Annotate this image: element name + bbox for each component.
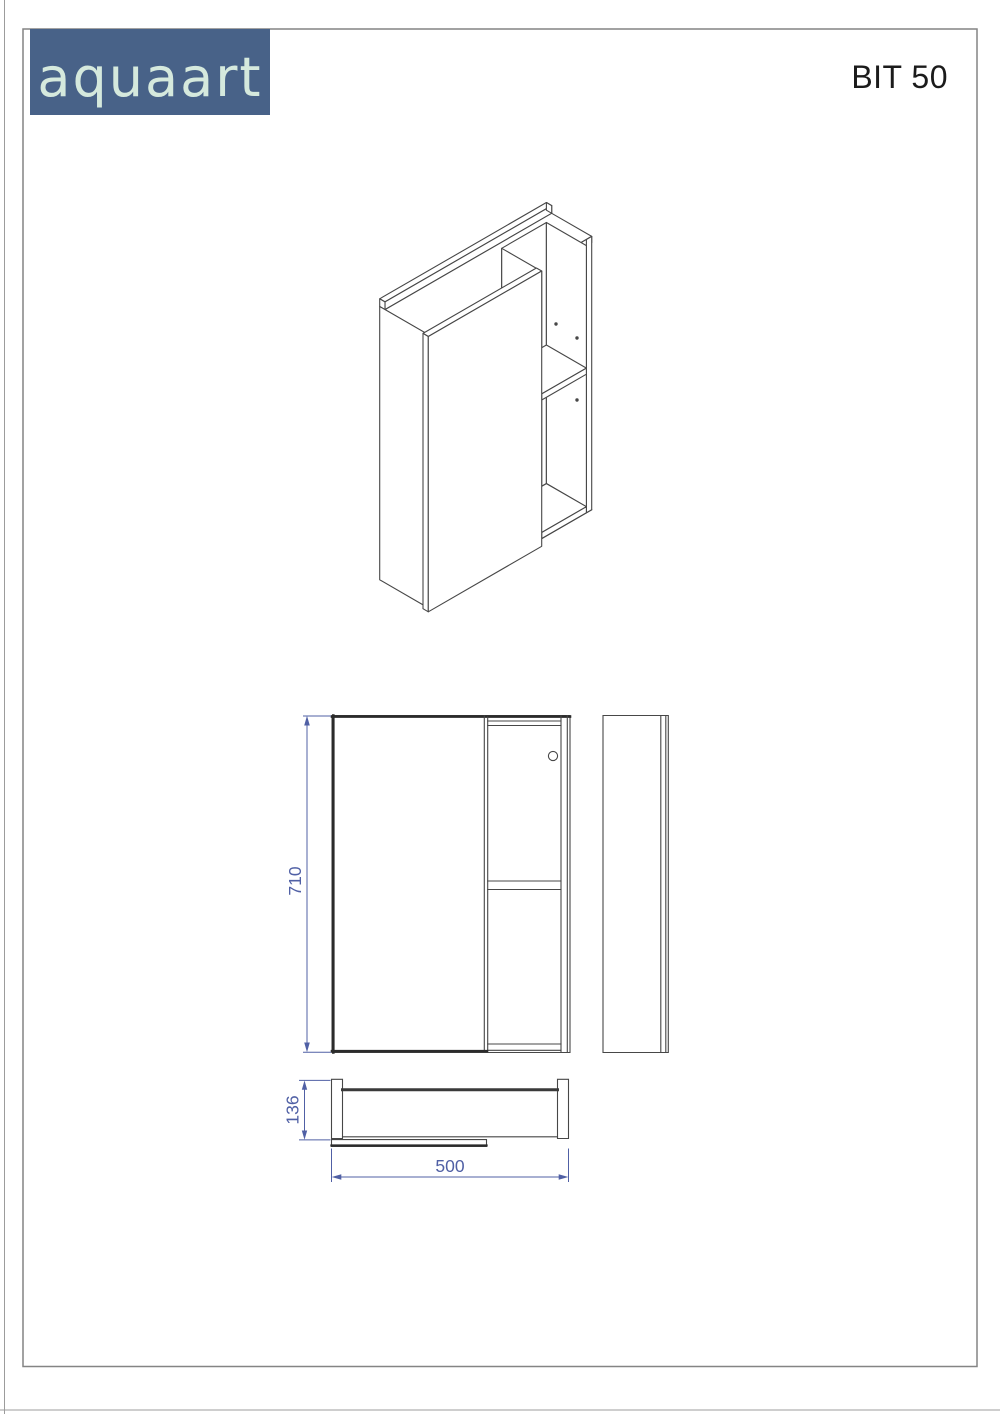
- top-view: [332, 1079, 569, 1146]
- dimension-arrow-down: [304, 1043, 310, 1053]
- mirror-door-left-edge: [423, 333, 428, 611]
- brand-logo-text: aquaart: [37, 46, 262, 109]
- dimension-arrow-up: [304, 716, 310, 726]
- dimension-arrow-up: [302, 1081, 307, 1090]
- brand-logo: aquaart: [30, 29, 270, 115]
- top-right-panel: [558, 1079, 569, 1138]
- drawing-canvas: aquaart BIT 50: [0, 0, 1000, 1414]
- front-view: [332, 716, 570, 1053]
- dimension-arrow-down: [302, 1131, 307, 1140]
- side-door-lines: [661, 716, 666, 1053]
- left-side-panel: [380, 307, 425, 607]
- side-outline: [603, 716, 668, 1053]
- dimension-depth: 136: [283, 1080, 331, 1140]
- dimension-label-height: 710: [285, 866, 305, 895]
- dimension-arrow-left: [332, 1174, 342, 1179]
- dimension-height: 710: [285, 716, 331, 1053]
- right-panel-front-edge: [586, 236, 591, 512]
- front-shelf-edge: [488, 881, 561, 890]
- dimension-width: 500: [332, 1149, 569, 1183]
- front-top-panel-edge: [488, 721, 561, 726]
- isometric-view: [380, 203, 592, 612]
- dimension-line: [303, 716, 331, 1052]
- front-bottom-panel-edge: [488, 1044, 561, 1050]
- dimension-label-depth: 136: [283, 1095, 303, 1124]
- side-view: [603, 716, 668, 1053]
- dimension-label-width: 500: [435, 1156, 464, 1176]
- drawing-page: aquaart BIT 50: [0, 0, 1000, 1414]
- top-left-panel: [332, 1079, 343, 1138]
- model-label: BIT 50: [851, 59, 948, 95]
- shelf-pin-hole-front: [548, 751, 557, 760]
- front-right-panel-lines: [561, 716, 567, 1052]
- front-outline: [332, 716, 570, 1053]
- dimension-arrow-right: [559, 1174, 569, 1179]
